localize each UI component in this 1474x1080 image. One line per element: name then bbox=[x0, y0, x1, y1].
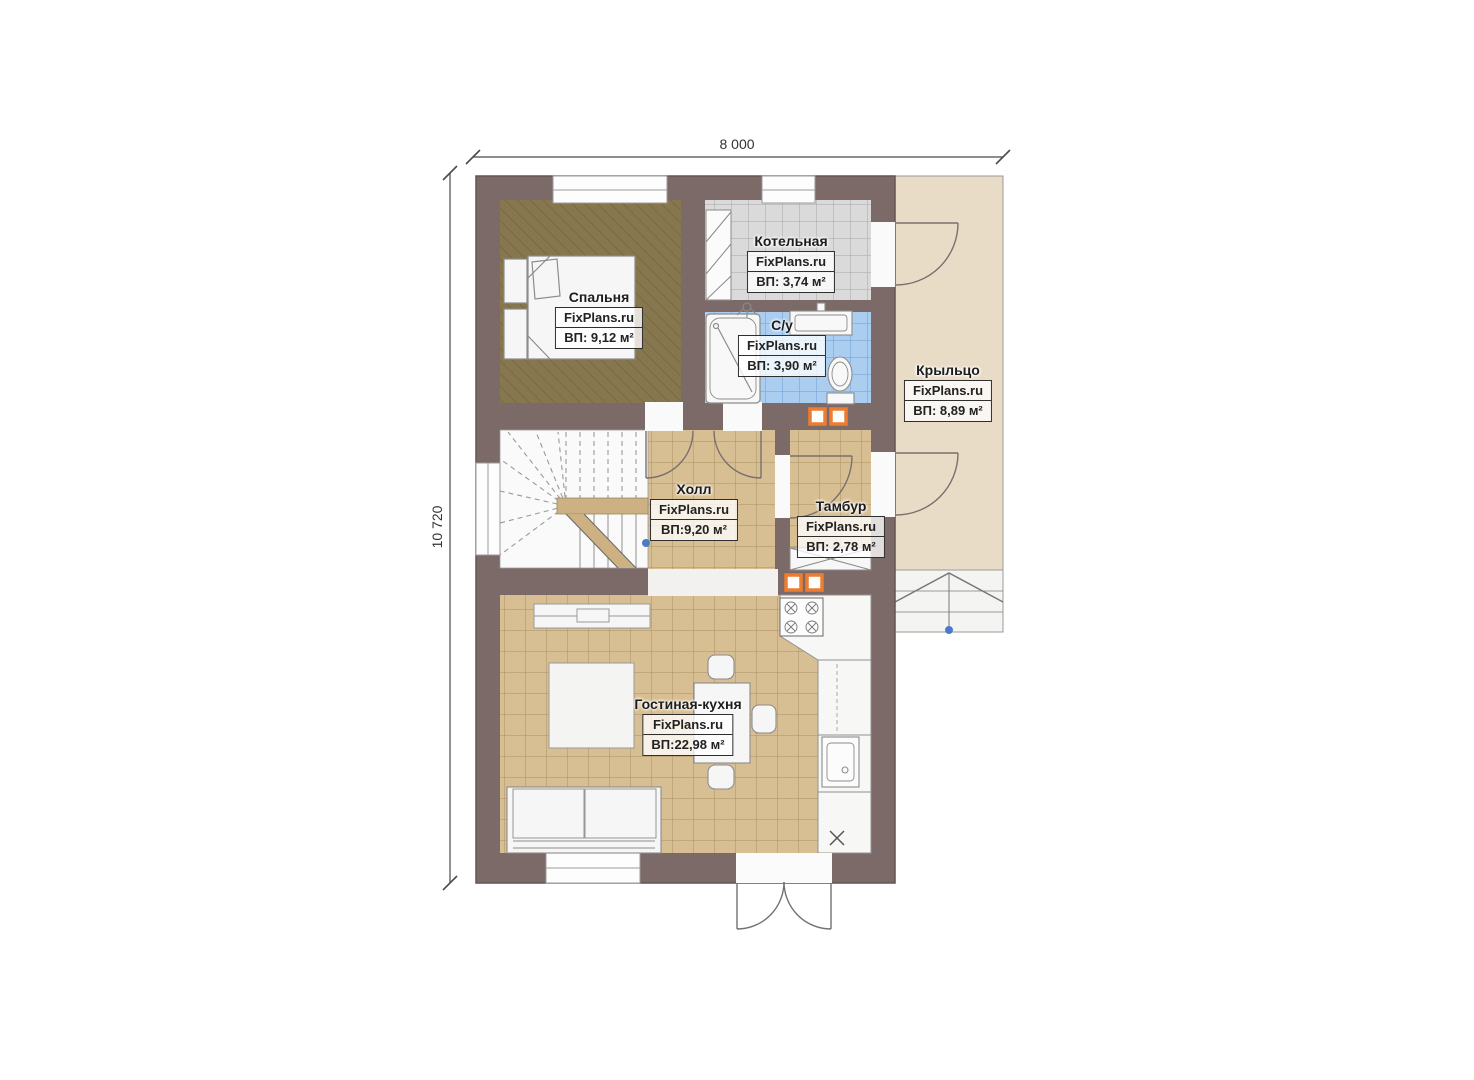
nightstand bbox=[504, 259, 527, 303]
toilet bbox=[827, 357, 854, 404]
porch-marker-dot bbox=[945, 626, 953, 634]
bedroom-window bbox=[553, 176, 667, 203]
room-label-living-kitchen: Гостиная-кухня FixPlans.ru ВП:22,98 м² bbox=[634, 696, 741, 756]
room-area-text: ВП: 2,78 м² bbox=[798, 537, 884, 557]
room-label-porch: Крыльцо FixPlans.ru ВП: 8,89 м² bbox=[904, 362, 992, 422]
sofa bbox=[507, 787, 661, 853]
room-name: Тамбур bbox=[797, 498, 885, 514]
dimension-left-label: 10 720 bbox=[429, 506, 445, 549]
room-area-text: ВП: 3,90 м² bbox=[739, 356, 825, 376]
room-info-box: FixPlans.ru ВП: 8,89 м² bbox=[904, 380, 992, 422]
watermark-text: FixPlans.ru bbox=[739, 336, 825, 356]
bathroom-door-opening bbox=[723, 402, 762, 431]
watermark-text: FixPlans.ru bbox=[643, 715, 732, 735]
watermark-text: FixPlans.ru bbox=[651, 500, 737, 520]
stove bbox=[780, 598, 823, 636]
plumbing-marker-dot bbox=[642, 539, 650, 547]
room-info-box: FixPlans.ru ВП:9,20 м² bbox=[650, 499, 738, 541]
room-info-box: FixPlans.ru ВП:22,98 м² bbox=[642, 714, 733, 756]
room-name: Спальня bbox=[555, 289, 643, 305]
watermark-text: FixPlans.ru bbox=[905, 381, 991, 401]
room-name: Гостиная-кухня bbox=[634, 696, 741, 712]
room-label-boiler: Котельная FixPlans.ru ВП: 3,74 м² bbox=[747, 233, 835, 293]
kitchen-sink bbox=[822, 737, 859, 787]
room-name: Котельная bbox=[747, 233, 835, 249]
room-area-text: ВП: 3,74 м² bbox=[748, 272, 834, 292]
vent-marker bbox=[810, 409, 825, 424]
room-label-hall: Холл FixPlans.ru ВП:9,20 м² bbox=[650, 481, 738, 541]
vestibule-door-opening bbox=[775, 455, 790, 518]
boiler-door-opening bbox=[871, 222, 895, 287]
room-area-text: ВП:9,20 м² bbox=[651, 520, 737, 540]
vent-marker bbox=[786, 575, 801, 590]
hall-living-passage bbox=[648, 569, 778, 596]
porch-steps bbox=[895, 570, 1003, 634]
watermark-text: FixPlans.ru bbox=[556, 308, 642, 328]
floor-plan-page: 8 000 10 720 Спальня FixPlans.ru ВП: 9,1… bbox=[0, 0, 1474, 1080]
terrace-door-opening bbox=[736, 853, 832, 883]
room-label-vestibule: Тамбур FixPlans.ru ВП: 2,78 м² bbox=[797, 498, 885, 558]
boiler-window bbox=[762, 176, 815, 203]
room-label-bathroom: С/у FixPlans.ru ВП: 3,90 м² bbox=[738, 317, 826, 377]
bedroom-door-opening bbox=[645, 402, 683, 431]
dimension-top-label: 8 000 bbox=[719, 136, 754, 152]
room-name: С/у bbox=[738, 317, 826, 333]
dimension-left-line bbox=[443, 166, 457, 890]
room-area-text: ВП: 9,12 м² bbox=[556, 328, 642, 348]
vent-marker bbox=[807, 575, 822, 590]
terrace-double-door bbox=[737, 882, 831, 929]
stair-window bbox=[476, 463, 500, 555]
watermark-text: FixPlans.ru bbox=[748, 252, 834, 272]
room-info-box: FixPlans.ru ВП: 2,78 м² bbox=[797, 516, 885, 558]
room-info-box: FixPlans.ru ВП: 3,74 м² bbox=[747, 251, 835, 293]
room-label-bedroom: Спальня FixPlans.ru ВП: 9,12 м² bbox=[555, 289, 643, 349]
stair-landing bbox=[557, 498, 648, 514]
tv-stand bbox=[534, 604, 650, 628]
rug bbox=[549, 663, 634, 748]
room-area-text: ВП:22,98 м² bbox=[643, 735, 732, 755]
boiler-equipment bbox=[706, 210, 731, 300]
living-window bbox=[546, 853, 640, 883]
vent-marker bbox=[831, 409, 846, 424]
nightstand bbox=[504, 309, 527, 359]
chair bbox=[708, 765, 734, 789]
room-info-box: FixPlans.ru ВП: 3,90 м² bbox=[738, 335, 826, 377]
dimension-top-line bbox=[466, 150, 1010, 164]
chair bbox=[752, 705, 776, 733]
room-name: Холл bbox=[650, 481, 738, 497]
chair bbox=[708, 655, 734, 679]
room-info-box: FixPlans.ru ВП: 9,12 м² bbox=[555, 307, 643, 349]
room-name: Крыльцо bbox=[904, 362, 992, 378]
watermark-text: FixPlans.ru bbox=[798, 517, 884, 537]
room-area-text: ВП: 8,89 м² bbox=[905, 401, 991, 421]
